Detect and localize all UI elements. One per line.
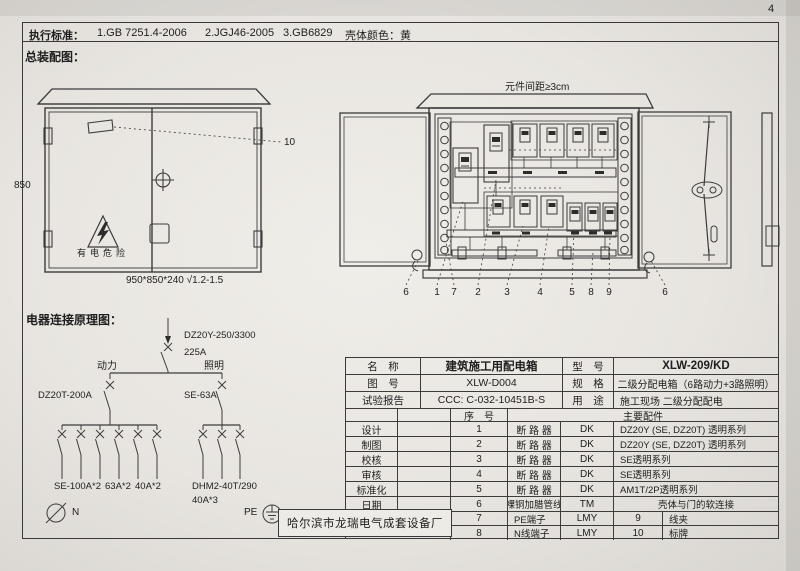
pe-label: PE: [244, 508, 257, 518]
callout-10: 10: [284, 138, 295, 148]
power-out-3: 40A*2: [135, 482, 161, 492]
main-breaker-rating: 225A: [184, 348, 206, 358]
sign-standardize: 标准化: [346, 482, 398, 496]
sign-review: 审核: [346, 467, 398, 481]
spec-label: 规 格: [563, 375, 614, 391]
side-panel-view: [762, 113, 779, 266]
callout-3: 3: [501, 287, 513, 298]
callout-6-right: 6: [659, 287, 671, 298]
lighting-branch-label: 照明: [204, 362, 224, 372]
sign-design-blank: [398, 422, 451, 436]
callout-7: 7: [448, 287, 460, 298]
nameplate: [88, 120, 113, 133]
model-value: XLW-209/KD: [614, 358, 778, 374]
component-spacing-note: 元件间距≥3cm: [505, 83, 569, 93]
sign-check: 校核: [346, 452, 398, 466]
size-note: 950*850*240 √1.2-1.5: [126, 276, 223, 286]
danger-text: 有电危险: [77, 249, 129, 258]
callout-4: 4: [534, 287, 546, 298]
seq-header: 序 号: [451, 409, 508, 421]
sign-design: 设计: [346, 422, 398, 436]
power-branch-label: 动力: [97, 362, 117, 372]
info-row-test-report: 试验报告 CCC: C-032-10451B-S 用 途 施工现场 二级分配配电: [346, 392, 778, 409]
use-label: 用 途: [563, 392, 614, 408]
right-door-open: [638, 112, 731, 273]
parts-row-1: 设计 1 断 路 器 DK DZ20Y (SE, DZ20T) 透明系列: [346, 422, 778, 437]
info-row-name: 名 称 建筑施工用配电箱 型 号 XLW-209/KD: [346, 358, 778, 375]
drawing-no-value: XLW-D004: [421, 375, 563, 391]
main-breaker: [453, 148, 478, 203]
parts-header: 主要配件: [508, 409, 778, 421]
scanned-drawing-page: 4 执行标准： 1.GB 7251.4-2006 2.JGJ46-2005 3.…: [0, 0, 800, 571]
lighting-out-qty: 40A*3: [192, 496, 218, 506]
spec-value: 二级分配电箱（6路动力+3路照明）: [614, 375, 778, 391]
neutral-symbol-icon: [46, 503, 66, 523]
test-report-value: CCC: C-032-10451B-S: [421, 392, 563, 408]
callout-1: 1: [431, 287, 443, 298]
door-handle-icon: [412, 250, 422, 260]
main-breaker-model: DZ20Y-250/3300: [184, 331, 255, 341]
door-latch-pad: [150, 224, 169, 243]
parts-header-row: 序 号 主要配件: [346, 409, 778, 422]
name-label: 名 称: [346, 358, 421, 374]
use-value: 施工现场 二级分配配电: [614, 392, 778, 408]
cable-entry-strip-right: [618, 118, 631, 255]
model-label: 型 号: [563, 358, 614, 374]
power-out-2: 63A*2: [105, 482, 131, 492]
test-report-label: 试验报告: [346, 392, 421, 408]
parts-row-5: 标准化 5 断 路 器 DK AM1T/2P透明系列: [346, 482, 778, 497]
electric-danger-icon: [88, 216, 118, 247]
lighting-out-model: DHM2-40T/290: [192, 482, 257, 492]
callout-8: 8: [585, 287, 597, 298]
callout-5: 5: [566, 287, 578, 298]
drawing-no-label: 图 号: [346, 375, 421, 391]
cable-entry-strip-left: [438, 118, 451, 255]
callout-2: 2: [472, 287, 484, 298]
supply-arrow-icon: [165, 336, 171, 344]
neutral-label: N: [72, 508, 79, 518]
callout-9: 9: [603, 287, 615, 298]
sign-draft: 制图: [346, 437, 398, 451]
manufacturer-name: 哈尔滨市龙瑞电气成套设备厂: [278, 509, 452, 537]
info-row-drawing-no: 图 号 XLW-D004 规 格 二级分配电箱（6路动力+3路照明）: [346, 375, 778, 392]
height-dimension: 850: [14, 181, 31, 191]
parts-row-3: 校核 3 断 路 器 DK SE透明系列: [346, 452, 778, 467]
door-lock-icon: [152, 169, 174, 191]
power-breaker-model: DZ20T-200A: [38, 391, 92, 401]
schematic-drawing: [46, 318, 281, 523]
open-view-drawing: [340, 94, 779, 285]
callout-6-left: 6: [400, 287, 412, 298]
product-name: 建筑施工用配电箱: [421, 358, 563, 374]
parts-row-2: 制图 2 断 路 器 DK DZ20Y (SE, DZ20T) 透明系列: [346, 437, 778, 452]
power-out-1: SE-100A*2: [54, 482, 101, 492]
left-door-open: [340, 113, 430, 271]
front-view-drawing: [38, 89, 281, 272]
lighting-breaker-model: SE-63A: [184, 391, 217, 401]
parts-row-4: 审核 4 断 路 器 DK SE透明系列: [346, 467, 778, 482]
